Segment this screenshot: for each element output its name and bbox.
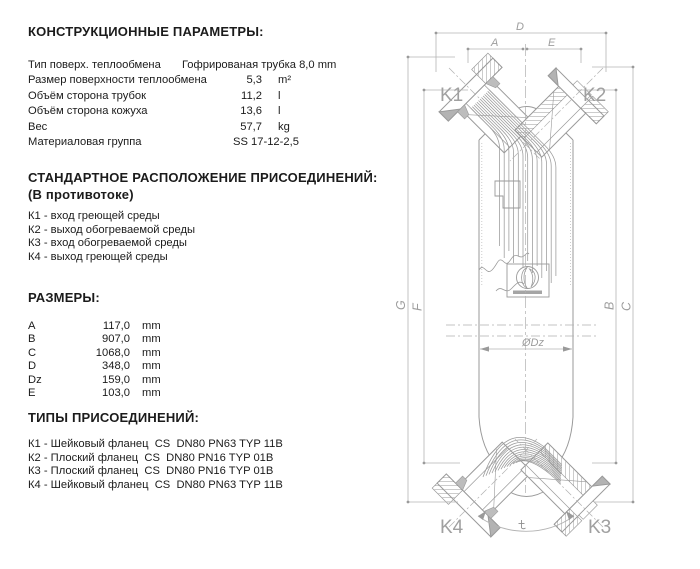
port-label-k3: K3	[588, 517, 611, 538]
dim-value: 117,0	[68, 320, 130, 333]
table-row: B 907,0 mm	[28, 333, 161, 346]
dimensions-title: РАЗМЕРЫ:	[28, 290, 100, 307]
port-label-k1: K1	[440, 85, 463, 106]
dim-unit: mm	[142, 333, 161, 346]
dim-value: 1068,0	[68, 347, 130, 360]
dim-label-f: F	[411, 302, 425, 311]
table-row: Dz 159,0 mm	[28, 374, 161, 387]
dim-label: A	[28, 320, 68, 333]
dim-value: 348,0	[68, 360, 130, 373]
dimensions-table: A 117,0 mm B 907,0 mm C 1068,0 mm D 348,…	[28, 320, 161, 400]
logo-text-illegible	[513, 291, 542, 295]
param-label: Объём сторона кожуха	[28, 104, 182, 119]
arrangement-title-line1: СТАНДАРТНОЕ РАСПОЛОЖЕНИЕ ПРИСОЕДИНЕНИЙ:	[28, 170, 378, 185]
construction-parameters-table: Тип поверх. теплообмена Гофрированая тру…	[28, 58, 336, 150]
table-row: Объём сторона кожуха 13,6 l	[28, 104, 336, 119]
table-row: Размер поверхности теплообмена 5,3 m²	[28, 73, 336, 88]
port-label-k2: K2	[583, 85, 606, 106]
arrangement-list: К1 - вход греющей среды К2 - выход обогр…	[28, 210, 195, 264]
dim-unit: mm	[142, 374, 161, 387]
param-label: Материаловая группа	[28, 135, 182, 150]
dim-label: E	[28, 387, 68, 400]
dim-label: D	[28, 360, 68, 373]
list-item: К2 - выход обогреваемой среды	[28, 224, 195, 238]
list-item: К1 - вход греющей среды	[28, 210, 195, 224]
list-item: К4 - Шейковый фланец CS DN80 PN63 TYP 11…	[28, 479, 283, 493]
table-row: D 348,0 mm	[28, 360, 161, 373]
param-value: 13,6	[182, 104, 262, 119]
param-value: SS 17-12-2,5	[233, 135, 299, 150]
dim-label-d: D	[516, 21, 524, 33]
param-value: 11,2	[182, 89, 262, 104]
param-value: 57,7	[182, 120, 262, 135]
dim-label: B	[28, 333, 68, 346]
dim-label: C	[28, 347, 68, 360]
dim-value: 159,0	[68, 374, 130, 387]
param-label: Вес	[28, 120, 182, 135]
table-row: Вес 57,7 kg	[28, 120, 336, 135]
list-item: К3 - вход обогреваемой среды	[28, 237, 195, 251]
list-item: К2 - Плоский фланец CS DN80 PN16 TYP 01B	[28, 452, 283, 466]
dim-value: 103,0	[68, 387, 130, 400]
param-unit: kg	[278, 120, 290, 135]
param-value: 5,3	[182, 73, 262, 88]
port-label-k4: K4	[440, 517, 464, 538]
dim-unit: mm	[142, 360, 161, 373]
dim-label-a: A	[490, 37, 498, 49]
dim-label-dz: ØDz	[521, 337, 545, 349]
table-row: Материаловая группа SS 17-12-2,5	[28, 135, 336, 150]
param-unit: l	[278, 89, 281, 104]
datasheet-page: КОНСТРУКЦИОННЫЕ ПАРАМЕТРЫ: Тип поверх. т…	[0, 0, 700, 569]
list-item: К3 - Плоский фланец CS DN80 PN16 TYP 01B	[28, 465, 283, 479]
connection-types-title: ТИПЫ ПРИСОЕДИНЕНИЙ:	[28, 410, 199, 427]
dim-label-c: C	[620, 301, 634, 311]
param-label: Размер поверхности теплообмена	[28, 73, 182, 88]
arrangement-title: СТАНДАРТНОЕ РАСПОЛОЖЕНИЕ ПРИСОЕДИНЕНИЙ: …	[28, 170, 388, 203]
table-row: Тип поверх. теплообмена Гофрированая тру…	[28, 58, 336, 73]
dim-unit: mm	[142, 320, 161, 333]
dim-unit: mm	[142, 387, 161, 400]
construction-parameters-title: КОНСТРУКЦИОННЫЕ ПАРАМЕТРЫ:	[28, 24, 264, 41]
connection-types-list: К1 - Шейковый фланец CS DN80 PN63 TYP 11…	[28, 438, 283, 492]
table-row: A 117,0 mm	[28, 320, 161, 333]
dim-unit: mm	[142, 347, 161, 360]
list-item: К4 - выход греющей среды	[28, 251, 195, 265]
table-row: E 103,0 mm	[28, 387, 161, 400]
param-label: Объём сторона трубок	[28, 89, 182, 104]
param-unit: m²	[278, 73, 291, 88]
angle-mark	[519, 520, 526, 529]
dim-label-e: E	[548, 37, 556, 49]
technical-drawing: D A E G F B C ØDz K1 K2 K4 K3	[385, 0, 700, 569]
dim-label: Dz	[28, 374, 68, 387]
table-row: C 1068,0 mm	[28, 347, 161, 360]
dim-label-b: B	[603, 302, 617, 310]
list-item: К1 - Шейковый фланец CS DN80 PN63 TYP 11…	[28, 438, 283, 452]
param-label: Тип поверх. теплообмена	[28, 58, 182, 73]
arrangement-title-line2: (В противотоке)	[28, 187, 134, 202]
dim-value: 907,0	[68, 333, 130, 346]
param-value: Гофрированая трубка 8,0 mm	[182, 58, 336, 73]
param-unit: l	[278, 104, 281, 119]
dim-label-g: G	[394, 300, 408, 310]
table-row: Объём сторона трубок 11,2 l	[28, 89, 336, 104]
manufacturer-logo	[507, 264, 549, 297]
